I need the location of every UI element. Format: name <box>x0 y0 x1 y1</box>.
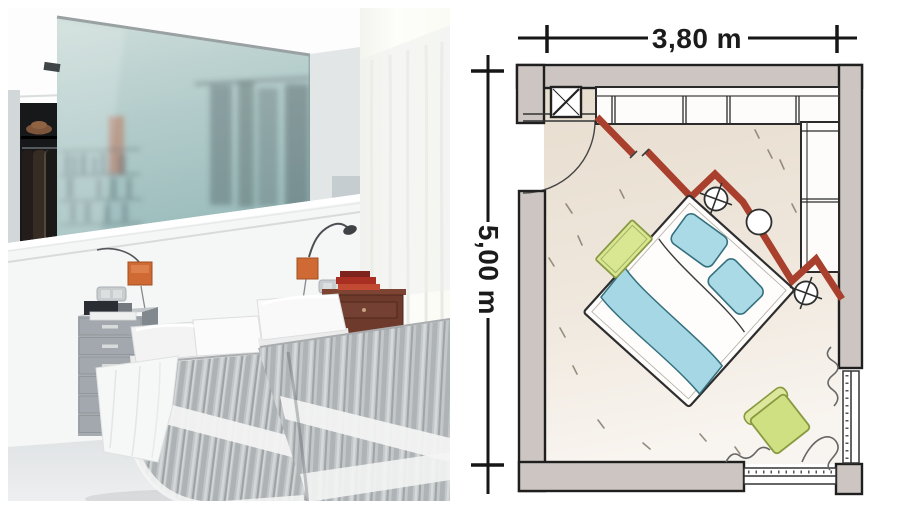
plan-width-label: 3,80 m <box>652 23 742 54</box>
closet-shelf <box>21 136 57 139</box>
plan-height-label: 5,00 m <box>473 225 504 315</box>
wardrobe-right-wall <box>801 122 839 272</box>
column-symbol-icon <box>551 87 581 117</box>
round-side-table <box>747 210 772 235</box>
wall-bottom <box>519 462 744 491</box>
floor-plan: 3,80 m 5,00 m <box>450 0 900 507</box>
clothes-rail <box>22 147 57 149</box>
light-switch-left <box>97 287 126 301</box>
floor-plan-panel: 3,80 m 5,00 m <box>450 0 900 507</box>
wall-right <box>839 65 862 368</box>
bedroom-photo-panel <box>0 0 450 507</box>
wall-left-lower <box>519 191 545 491</box>
clothes-silhouette <box>195 78 310 208</box>
window-bottom-wall <box>744 468 836 484</box>
wall-corner-post <box>836 464 862 494</box>
bedroom-photo <box>0 0 450 507</box>
lamp-highlight <box>131 265 149 273</box>
wardrobe-top-wall <box>596 87 839 124</box>
wall-lamp-right <box>297 258 318 279</box>
books-on-drawer-unit <box>84 301 136 320</box>
composite-image: 3,80 m 5,00 m <box>0 0 900 507</box>
window-right-wall <box>843 371 859 463</box>
wall-top <box>517 65 862 88</box>
